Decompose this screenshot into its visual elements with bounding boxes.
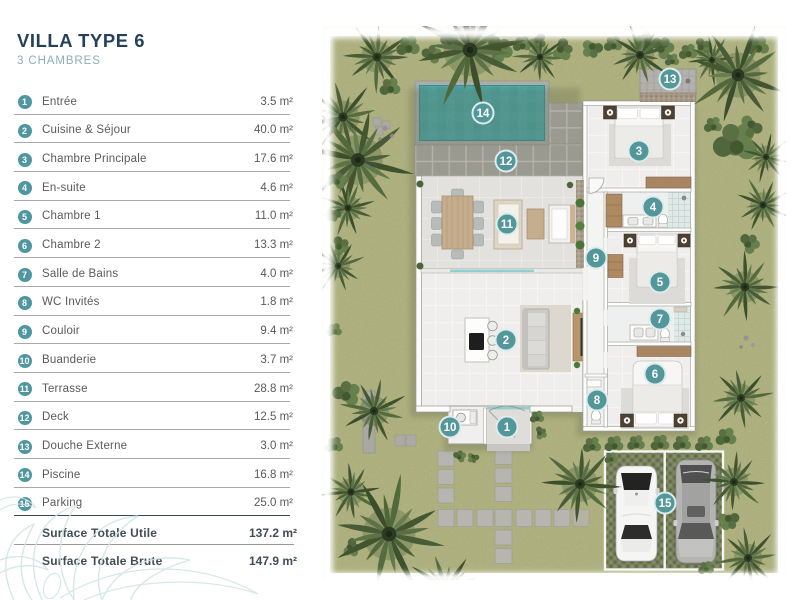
svg-text:8: 8 [594,395,601,407]
svg-text:12: 12 [500,156,513,168]
svg-text:7: 7 [657,314,663,326]
svg-text:5: 5 [657,277,664,289]
svg-text:9: 9 [593,253,599,265]
svg-text:2: 2 [503,335,509,347]
svg-text:10: 10 [444,422,457,434]
svg-text:3: 3 [636,146,642,158]
svg-text:1: 1 [504,422,511,434]
svg-text:14: 14 [477,108,490,120]
svg-text:4: 4 [650,202,657,214]
svg-text:13: 13 [664,74,677,86]
svg-text:11: 11 [501,219,514,231]
svg-text:6: 6 [652,369,658,381]
svg-text:15: 15 [659,498,672,510]
